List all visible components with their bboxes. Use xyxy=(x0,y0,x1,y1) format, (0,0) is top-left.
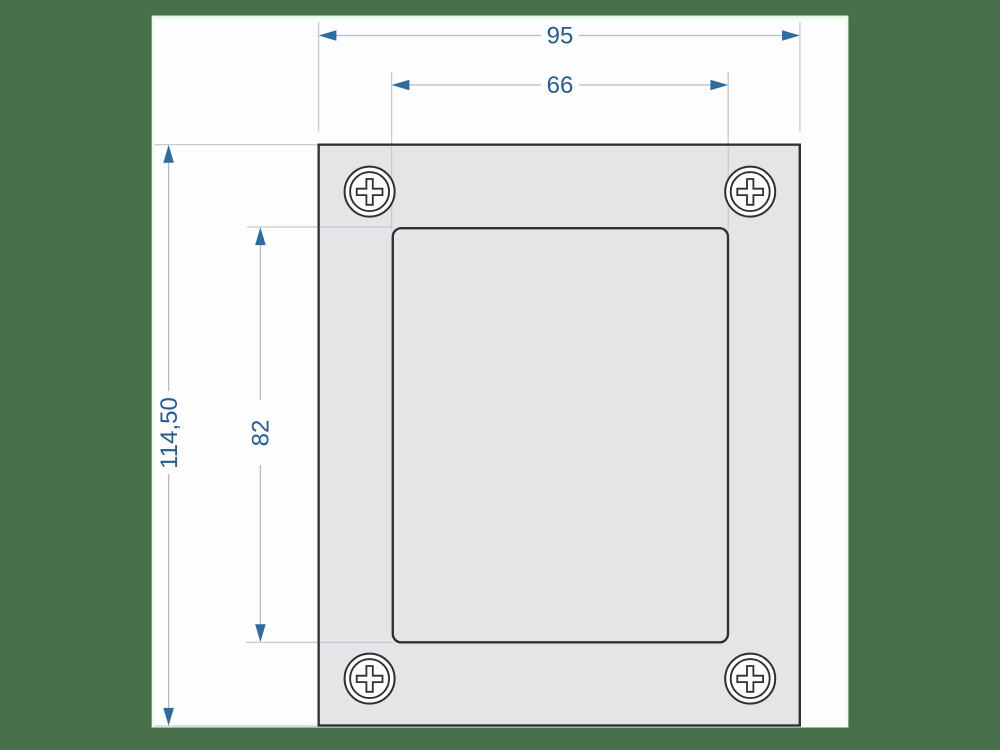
svg-text:82: 82 xyxy=(248,420,275,447)
svg-text:114,50: 114,50 xyxy=(156,397,183,469)
svg-text:95: 95 xyxy=(547,23,574,50)
svg-text:66: 66 xyxy=(547,72,574,99)
